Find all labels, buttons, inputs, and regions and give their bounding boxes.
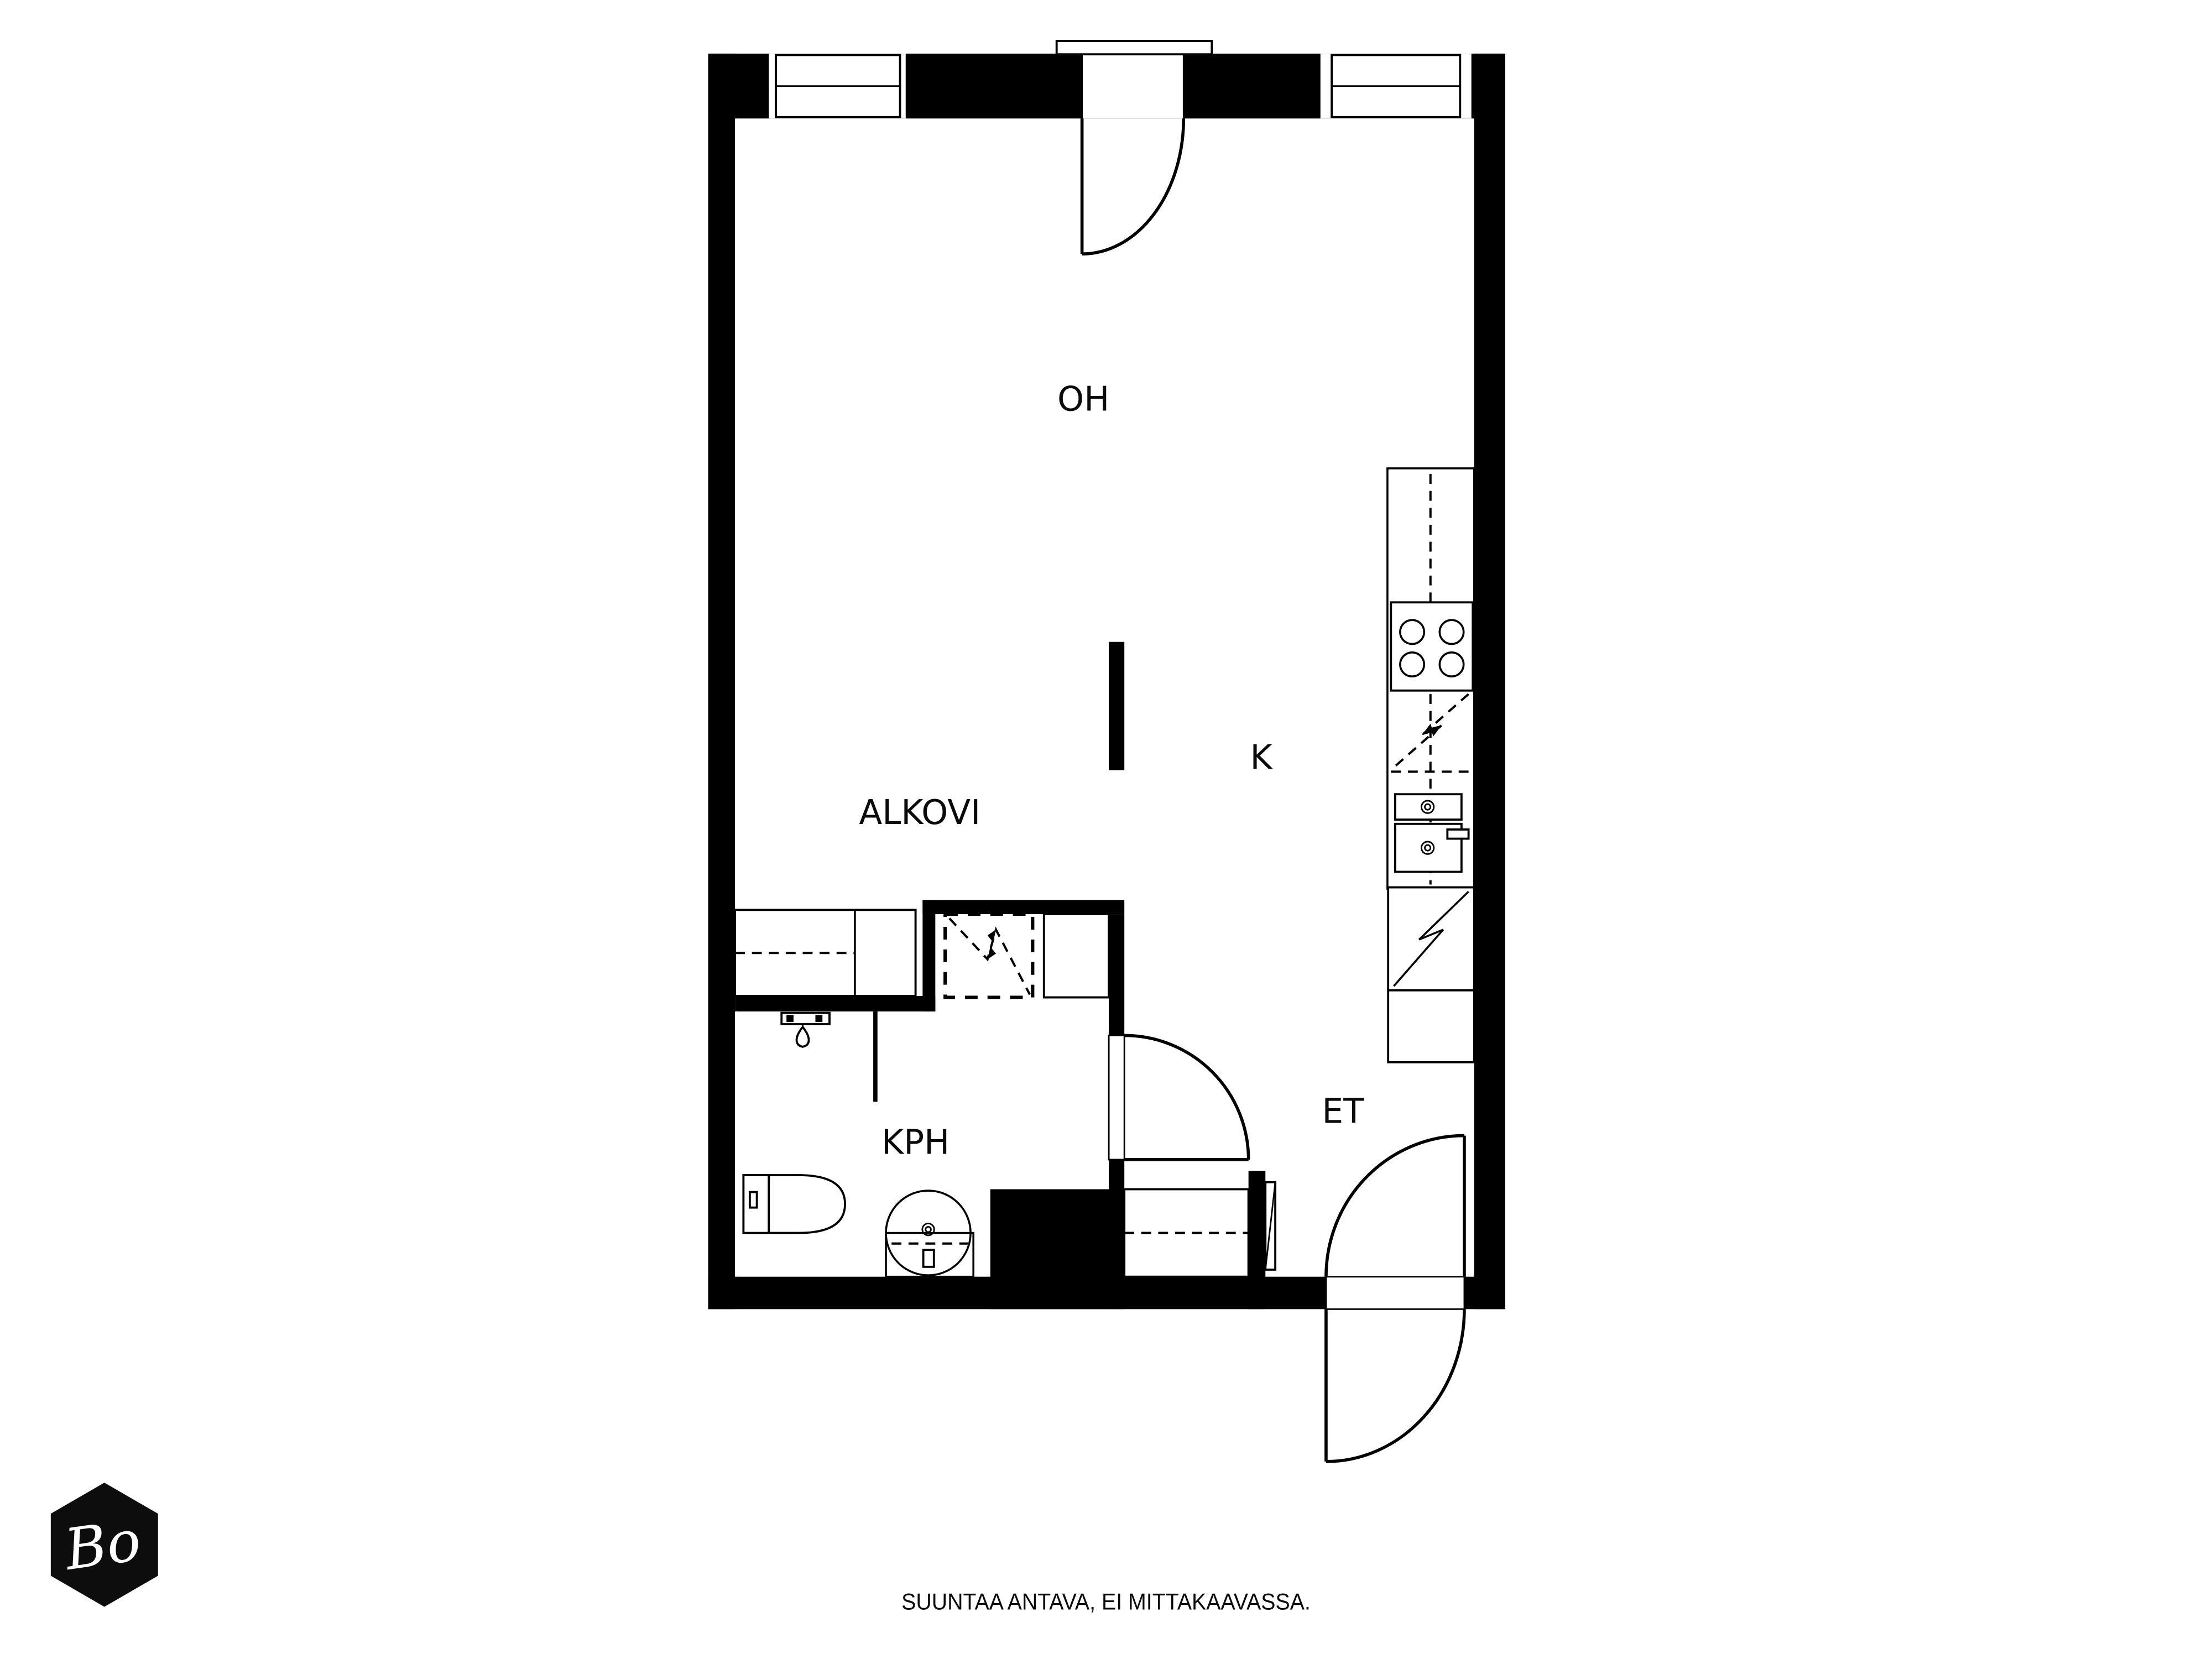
shower-droplet [797, 1027, 809, 1047]
walls [708, 54, 1505, 1309]
room-label-oh: OH [1057, 379, 1109, 419]
utility-niche [945, 914, 1109, 998]
washbasin-icon [886, 1191, 973, 1277]
opening-balcony-door [1082, 54, 1184, 118]
opening-bathroom-door [1109, 1035, 1124, 1159]
room-label-et: ET [1322, 1092, 1365, 1131]
window-left-icon [776, 55, 900, 117]
wall-kitchen-stub [1109, 642, 1124, 770]
room-label-kph: KPH [881, 1123, 950, 1162]
balcony-threshold [1057, 41, 1212, 54]
wall-niche-top [922, 900, 1124, 915]
wall-niche-left [922, 900, 935, 1012]
wall-alcove-bottom [735, 996, 935, 1011]
wall-kph-door-upper [1109, 914, 1124, 1035]
sink-icon [1395, 794, 1469, 872]
logo: Bo [51, 1483, 158, 1606]
window-right-icon [1332, 55, 1460, 117]
dishwasher-reservation-icon [1391, 694, 1473, 771]
sink-tap [1447, 830, 1468, 839]
stove-icon [1391, 602, 1473, 690]
floor-plan-canvas: OH K ALKOVI KPH ET Bo SUUNTAA ANTAVA, EI… [0, 0, 2212, 1659]
wall-left [708, 54, 735, 1309]
washing-machine-reservation-icon [945, 914, 1032, 998]
entry-door-swing-inner [1326, 1136, 1464, 1277]
shower-mixer-icon [781, 1013, 830, 1047]
wall-shaft-block [990, 1190, 1124, 1310]
opening-entry-door [1326, 1277, 1464, 1310]
bathroom-door-icon [1109, 1035, 1249, 1159]
fridge-icon [1388, 888, 1474, 990]
toilet-icon [743, 1175, 845, 1233]
disclaimer-text: SUUNTAA ANTAVA, EI MITTAKAAVASSA. [901, 1589, 1311, 1615]
wall-right [1474, 54, 1505, 1309]
alcove-bed-icon [735, 910, 916, 996]
bathroom-door-swing [1124, 1035, 1248, 1159]
room-label-k: K [1250, 738, 1274, 777]
logo-text: Bo [60, 1507, 145, 1583]
kitchen-cabinet [1388, 990, 1474, 1062]
room-label-alkovi: ALKOVI [859, 793, 980, 832]
utility-cabinet [1044, 914, 1109, 998]
balcony-door-swing-arc [1082, 118, 1184, 254]
wall-closet-stub [1249, 1171, 1266, 1309]
entry-door-swing-outer [1326, 1309, 1464, 1462]
shower-screen [873, 1011, 878, 1102]
kitchen-fixtures [1387, 468, 1474, 1062]
